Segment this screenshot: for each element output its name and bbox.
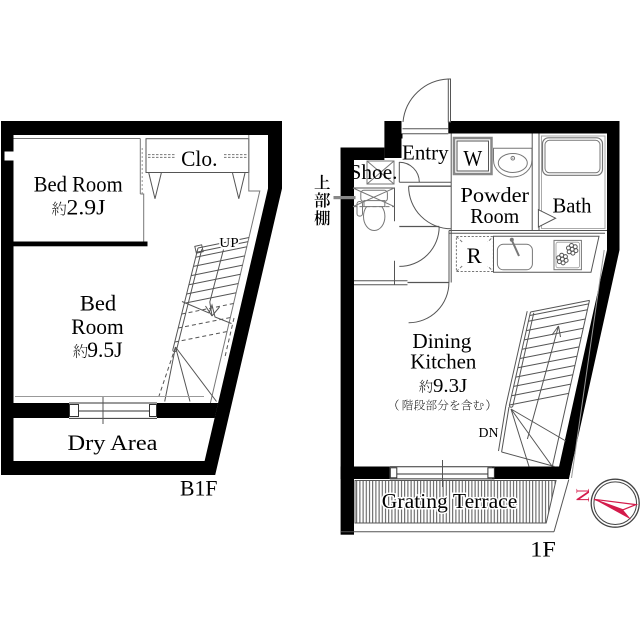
svg-text:Shoe.: Shoe. bbox=[350, 160, 398, 184]
svg-text:W: W bbox=[463, 146, 482, 171]
svg-text:Dry Area: Dry Area bbox=[68, 430, 158, 455]
svg-text:DN: DN bbox=[479, 426, 499, 441]
svg-text:9.3J: 9.3J bbox=[433, 375, 467, 397]
svg-text:Room: Room bbox=[71, 314, 124, 339]
svg-text:9.5J: 9.5J bbox=[87, 337, 123, 362]
svg-text:UP: UP bbox=[219, 236, 239, 251]
svg-text:Grating Terrace: Grating Terrace bbox=[382, 489, 518, 513]
svg-text:Kitchen: Kitchen bbox=[410, 350, 477, 374]
svg-text:2.9J: 2.9J bbox=[67, 195, 106, 220]
svg-text:Bed: Bed bbox=[80, 291, 116, 316]
svg-text:R: R bbox=[467, 243, 482, 268]
svg-text:Room: Room bbox=[470, 204, 519, 228]
svg-text:B1F: B1F bbox=[180, 476, 218, 501]
svg-text:Bed Room: Bed Room bbox=[34, 172, 123, 197]
svg-text:Bath: Bath bbox=[552, 193, 592, 217]
svg-text:Entry: Entry bbox=[402, 140, 449, 164]
svg-text:Clo.: Clo. bbox=[181, 146, 217, 171]
svg-text:1F: 1F bbox=[530, 536, 556, 561]
svg-text:N: N bbox=[572, 488, 593, 502]
